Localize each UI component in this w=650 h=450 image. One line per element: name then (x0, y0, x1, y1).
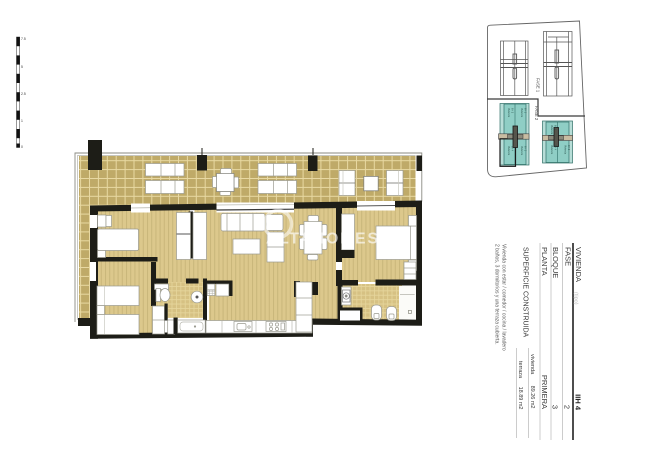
svg-text:Vivienda: Vivienda (520, 146, 523, 156)
svg-text:IIH 4: IIH 4 (511, 146, 514, 152)
svg-text:89.26 m2: 89.26 m2 (529, 386, 535, 409)
svg-text:2.5: 2.5 (21, 92, 26, 96)
svg-text:FASE 1: FASE 1 (536, 78, 541, 93)
svg-text:IIH 2: IIH 2 (524, 146, 527, 152)
svg-text:0: 0 (21, 145, 23, 149)
svg-text:PLANTA: PLANTA (540, 247, 549, 276)
svg-text:IIH 3: IIH 3 (554, 125, 557, 131)
svg-text:Vivienda: Vivienda (507, 108, 510, 118)
svg-text:Vivienda: Vivienda (550, 145, 553, 155)
svg-text:IIH 2: IIH 2 (567, 145, 570, 151)
svg-text:Vivienda: Vivienda (520, 108, 523, 118)
svg-text:3: 3 (551, 405, 560, 409)
svg-text:ALTAHOMES: ALTAHOMES (266, 231, 380, 248)
svg-text:Vivienda: Vivienda (564, 145, 567, 155)
svg-text:2: 2 (563, 405, 572, 409)
svg-text:(tipo): (tipo) (573, 292, 579, 305)
svg-text:VIVIENDA: VIVIENDA (574, 247, 583, 282)
svg-text:IIH 3: IIH 3 (511, 108, 514, 114)
svg-text:18.89 m2: 18.89 m2 (517, 387, 523, 410)
svg-text:Vivienda: Vivienda (550, 125, 553, 135)
svg-text:IIH 1: IIH 1 (524, 108, 527, 114)
svg-text:PRIMERA: PRIMERA (540, 375, 549, 409)
svg-text:Vivienda: Vivienda (507, 146, 510, 156)
svg-text:SUPERFICIE CONSTRUIDA: SUPERFICIE CONSTRUIDA (522, 247, 529, 338)
svg-text:BLOQUE: BLOQUE (551, 247, 560, 278)
svg-text:terraza: terraza (517, 361, 523, 379)
svg-text:IIH 4: IIH 4 (574, 394, 583, 411)
svg-text:IIH 4: IIH 4 (554, 145, 557, 151)
svg-text:5: 5 (21, 65, 23, 69)
svg-text:FASE 2: FASE 2 (534, 106, 539, 121)
svg-text:7.5: 7.5 (21, 37, 26, 41)
svg-text:Vivienda con estar / comedor /: Vivienda con estar / comedor / cocina / … (501, 244, 507, 351)
svg-text:1: 1 (21, 119, 23, 123)
svg-text:2 baños, 3 dormitorios y una: 2 baños, 3 dormitorios y una terraza cub… (494, 244, 500, 345)
svg-text:vivienda: vivienda (529, 354, 535, 375)
svg-text:FASE: FASE (564, 247, 573, 266)
